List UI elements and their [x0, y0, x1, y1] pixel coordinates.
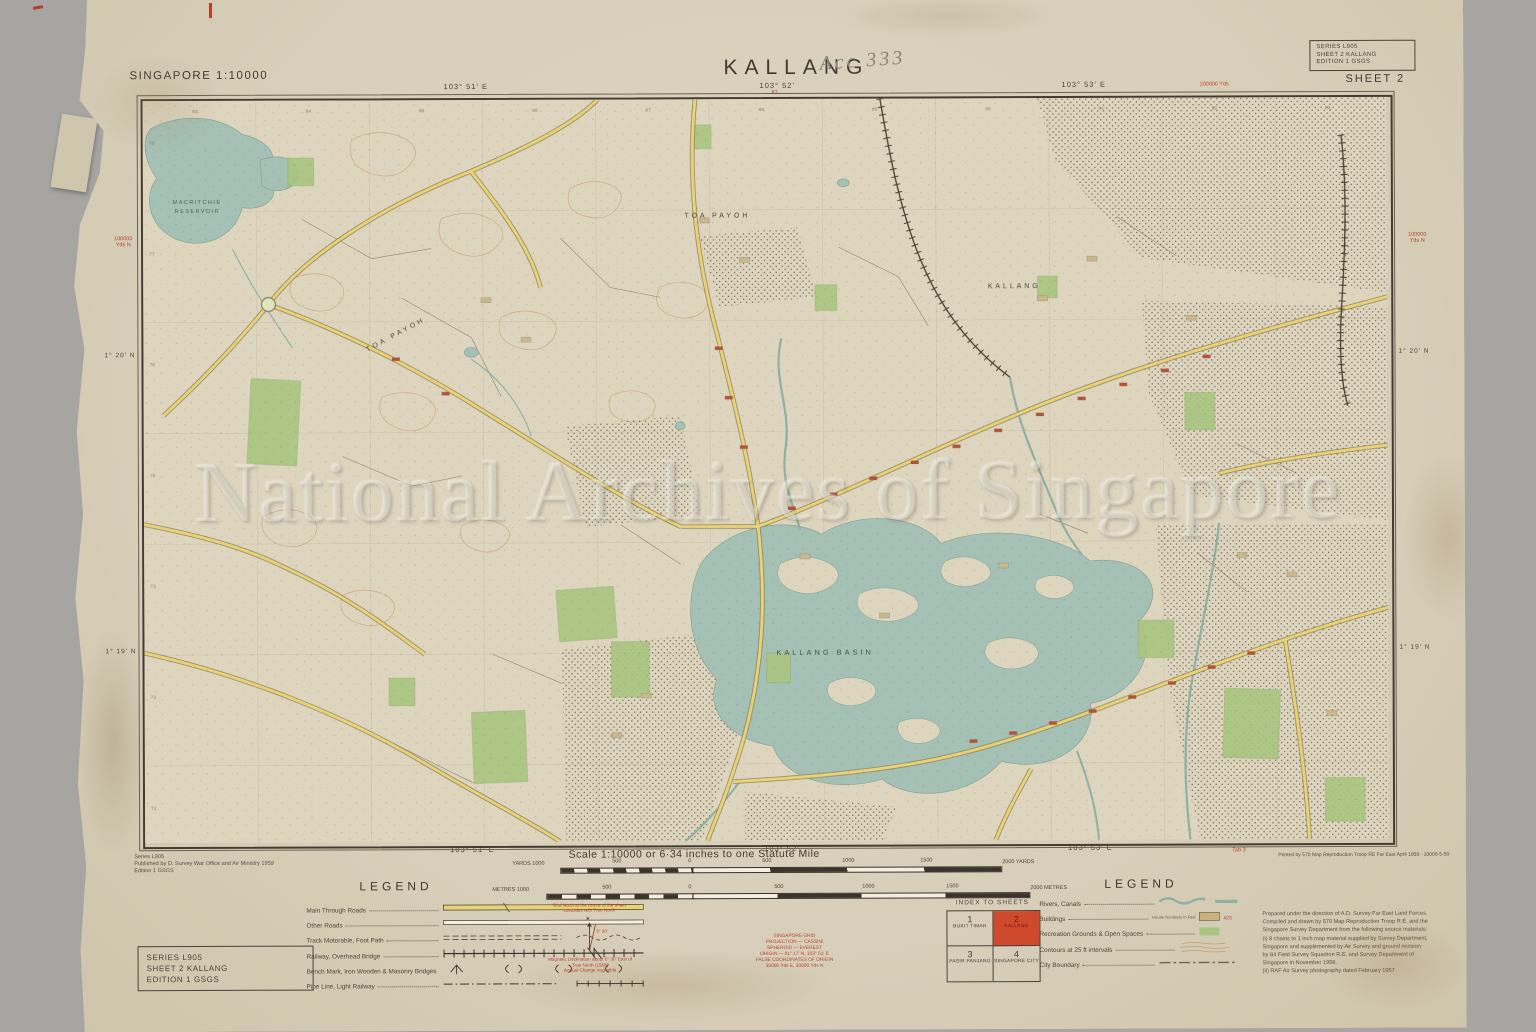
declination-note-top: Grid North at the centre of the sheet co…	[529, 902, 649, 913]
yards-tick: 500	[612, 859, 621, 865]
yards-right-label: 2000 YARDS	[1002, 859, 1034, 865]
leader-line	[1146, 926, 1194, 935]
yards-bar-right	[692, 866, 1002, 873]
leader-line	[1115, 941, 1174, 950]
svg-text:72: 72	[151, 806, 157, 812]
svg-text:86: 86	[532, 108, 538, 114]
stain	[1403, 451, 1494, 621]
red-margin-line2: Yds N	[114, 242, 132, 248]
index-cell-2-highlighted: 2 KALLANG	[993, 911, 1039, 946]
series-box-top: SERIES L905 SHEET 2 KALLANG EDITION 1 GS…	[1309, 40, 1415, 71]
legend-label: Track Motorable, Foot Path	[306, 938, 383, 945]
declination-line: Annual Change negligible	[523, 968, 658, 974]
leader-line	[369, 902, 438, 911]
torn-paper-flap	[50, 114, 97, 193]
legend-label: Rivers, Canals	[1039, 901, 1081, 908]
legend-row-pipeline: Pipe Line, Light Railway	[307, 976, 647, 990]
coord-red-top-right: 100000 Yds	[1199, 81, 1228, 87]
coord-top-mid: 103° 52'	[759, 81, 794, 90]
coord-red-right-margin: 100000 Yds N	[1408, 232, 1426, 244]
red-mark	[33, 5, 43, 10]
toa-payoh-label: TOA PAYOH	[684, 213, 750, 220]
coord-right-upper: 1° 20' N	[1398, 348, 1429, 355]
publisher-note: Series L905 Published by D. Survey War O…	[134, 854, 274, 875]
metres-tick: 500	[602, 885, 611, 891]
index-cell-1: 1 BUKIT TIMAH	[947, 911, 993, 946]
legend-right: Rivers, Canals Buildings House Numbers i…	[1039, 894, 1239, 971]
pipeline-lightrail-symbol	[442, 976, 647, 990]
series-line: SERIES L905	[147, 952, 305, 964]
legend-label: Bench Mark, Iron Wooden & Masonry Bridge…	[307, 968, 437, 975]
legend-row-rivers: Rivers, Canals	[1039, 894, 1239, 908]
coord-top-right: 103° 53' E	[1061, 80, 1105, 89]
declination-note-bottom: Magnetic Declination about 0° 30' East o…	[523, 956, 658, 973]
legend-right-title: LEGEND	[1104, 877, 1177, 891]
metres-bar-left	[546, 893, 694, 899]
series-box-bottom: SERIES L905 SHEET 2 KALLANG EDITION 1 GS…	[138, 946, 314, 992]
yards-tick: 1000	[842, 858, 854, 864]
legend-label: City Boundary	[1040, 962, 1080, 969]
declination-line: coincides with True North	[529, 908, 649, 914]
svg-text:85: 85	[419, 108, 425, 114]
other-road-symbol	[441, 916, 646, 930]
region-scale-label: SINGAPORE 1:10000	[129, 70, 268, 82]
index-cell-4: 4 SINGAPORE CITY	[994, 946, 1040, 981]
svg-text:89: 89	[872, 106, 878, 112]
leader-line	[1084, 896, 1154, 905]
coord-left-upper: 1° 20' N	[104, 352, 135, 359]
legend-row-city-boundary: City Boundary	[1040, 955, 1240, 969]
declination-angle: 0° 30'	[596, 929, 607, 935]
yards-tick: 1500	[920, 857, 932, 863]
declination-diagram: ✶	[569, 915, 609, 955]
yards-tick: 0	[688, 858, 691, 864]
red-margin-line2: Yds N	[1408, 238, 1426, 244]
red-mark	[209, 3, 212, 18]
watermark: National Archives of Singapore	[148, 438, 1388, 542]
publisher-line: Edition 1 GSGS	[134, 868, 274, 875]
scalebar-yards: YARDS 1000 500 0 500 1000 1500 2000 YARD…	[494, 857, 1114, 877]
svg-text:77: 77	[149, 251, 155, 257]
svg-text:84: 84	[306, 108, 312, 114]
leader-line	[387, 933, 439, 942]
leader-line	[383, 948, 438, 957]
edition-line: EDITION 1 GSGS	[1316, 59, 1408, 67]
contours-symbol	[1177, 940, 1239, 953]
paper-sheet: SINGAPORE 1:10000 KALLANG Acc 333 SERIES…	[71, 0, 1467, 1032]
handwritten-acc-number: Acc 333	[819, 47, 906, 76]
svg-text:93: 93	[1325, 105, 1331, 111]
leader-line	[378, 978, 439, 987]
metres-tick: 500	[774, 884, 783, 890]
print-note: Printed by 570 Map Reproduction Troop RE…	[1229, 852, 1449, 859]
yards-bar-left	[560, 867, 694, 873]
legend-label: Other Roads	[306, 923, 342, 930]
legend-left-title: LEGEND	[359, 879, 432, 893]
metres-tick: 1500	[946, 883, 958, 889]
leader-line	[346, 917, 439, 926]
legend-label: Railway, Overhead Bridge	[307, 953, 381, 960]
svg-text:423: 423	[1223, 916, 1232, 922]
rivers-canals-symbol	[1157, 894, 1239, 907]
leader-line	[1068, 911, 1149, 920]
metres-left-label: METRES 1000	[492, 887, 529, 893]
svg-text:RESERVOIR: RESERVOIR	[175, 209, 220, 215]
legend-label: Contours at 25 ft intervals	[1040, 946, 1113, 953]
legend-label: Buildings	[1039, 916, 1065, 923]
coord-top-left: 103° 51' E	[443, 82, 487, 91]
coord-left-lower: 1° 19' N	[105, 648, 136, 655]
index-cell-3: 3 PASIR PANJANG	[948, 946, 994, 981]
buildings-symbol: 423	[1197, 910, 1239, 923]
svg-text:90: 90	[985, 106, 991, 112]
buildings-note: House Numbers in Red	[1152, 915, 1196, 920]
svg-text:✶: ✶	[585, 916, 590, 923]
svg-text:91: 91	[1098, 106, 1104, 112]
yards-tick: 500	[762, 858, 771, 864]
metres-right-label: 2000 METRES	[1030, 885, 1067, 891]
reservoir-label: MACRITCHIE	[173, 200, 222, 206]
svg-text:78: 78	[149, 141, 155, 147]
metres-bar-right	[692, 892, 1030, 899]
legend-label: Main Through Roads	[306, 907, 366, 914]
svg-text:87: 87	[645, 107, 651, 113]
legend-label: Recreation Grounds & Open Spaces	[1039, 931, 1143, 938]
legend-row-recreation: Recreation Grounds & Open Spaces	[1039, 925, 1239, 939]
credits-paragraph: Prepared under the direction of A.D. Sur…	[1262, 910, 1458, 976]
yards-left-label: YARDS 1000	[512, 861, 544, 867]
sheet-line: SHEET 2 KALLANG	[147, 963, 305, 975]
svg-text:76: 76	[149, 362, 155, 368]
svg-text:73: 73	[151, 695, 157, 701]
kallang-basin-label: KALLANG BASIN	[776, 648, 873, 657]
grid-info-line: 30000 Yds E, 30000 Yds N	[730, 964, 860, 970]
city-boundary-symbol	[1158, 955, 1240, 968]
legend-row-buildings: Buildings House Numbers in Red 423	[1039, 910, 1239, 924]
kallang-label: KALLANG	[988, 283, 1041, 290]
grid-info-block: SINGAPORE GRID PROJECTION — CASSINI SPHE…	[729, 934, 859, 970]
credits-line: (ii) RAF Air Survey photography dated Fe…	[1263, 967, 1459, 976]
recreation-symbol	[1197, 925, 1239, 938]
edition-line: EDITION 1 GSGS	[147, 974, 305, 986]
svg-text:74: 74	[150, 584, 156, 590]
sheet-number-label: SHEET 2	[1345, 73, 1405, 85]
coord-right-lower: 1° 19' N	[1399, 644, 1430, 651]
legend-row-contours: Contours at 25 ft intervals	[1039, 940, 1239, 954]
metres-tick: 0	[688, 884, 691, 890]
index-to-sheets: 1 BUKIT TIMAH 2 KALLANG 3 PASIR PANJANG …	[946, 910, 1040, 982]
metres-tick: 1000	[862, 884, 874, 890]
coord-red-left-margin: 100000 Yds N	[114, 236, 132, 248]
svg-text:92: 92	[1212, 105, 1218, 111]
leader-line	[1083, 956, 1155, 965]
track-footpath-symbol	[441, 931, 646, 945]
stain	[831, 0, 1061, 39]
publisher-line: Published by D. Survey War Office and Ai…	[134, 861, 274, 868]
svg-text:88: 88	[759, 107, 765, 113]
svg-text:83: 83	[192, 109, 198, 115]
index-to-sheets-title: INDEX TO SHEETS	[942, 899, 1042, 906]
legend-label: Pipe Line, Light Railway	[307, 983, 375, 990]
